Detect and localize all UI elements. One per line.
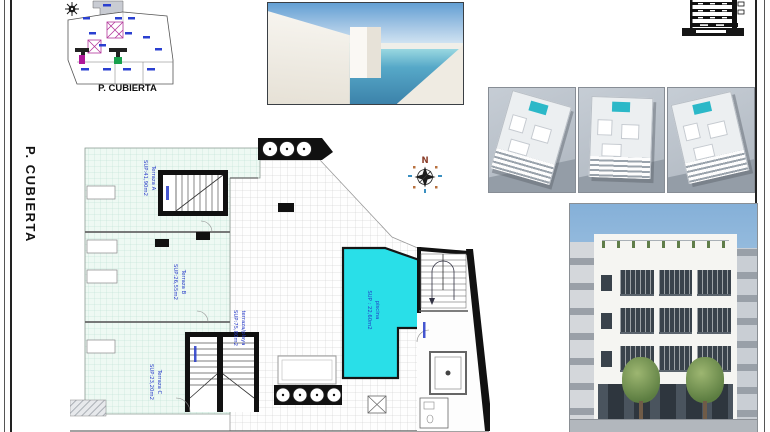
window — [620, 308, 654, 334]
pool-render-image — [267, 2, 464, 105]
frame-left-outer — [4, 0, 5, 432]
tree — [686, 357, 724, 419]
tree — [622, 357, 660, 419]
window — [620, 270, 654, 296]
roof-volume — [683, 123, 701, 142]
aerial-renders-strip — [488, 87, 755, 193]
roof-volume — [508, 115, 527, 135]
render-wall-right — [381, 43, 463, 49]
rooftop-pool — [611, 102, 629, 113]
roof-volume — [707, 121, 727, 139]
compass-north-label: N — [421, 156, 428, 166]
street-road — [570, 419, 757, 432]
vent-band-bottom — [274, 385, 342, 405]
piscina-area: SUP : 22,60m2 — [366, 290, 372, 329]
tree-canopy — [622, 357, 660, 403]
facade-render-image — [569, 203, 758, 432]
mini-plan-caption: P. CUBIERTA — [55, 83, 200, 94]
balcony-row — [620, 308, 731, 334]
window — [659, 308, 693, 334]
render-wall-cube — [350, 27, 381, 78]
rooftop-pool — [693, 101, 713, 115]
mini-green-core — [114, 57, 122, 64]
sidewalk-hatch — [70, 400, 106, 416]
building-section-drawing — [678, 0, 748, 40]
roof-volume — [597, 120, 613, 137]
aerial-render-2 — [578, 87, 666, 193]
terraza-c-name: Terraza C — [156, 369, 162, 395]
frame-left-inner — [10, 0, 12, 432]
window — [697, 308, 731, 334]
roof-volume — [621, 124, 639, 139]
neighbor-building-left — [570, 242, 595, 432]
terraza-playa-area: SUP:75,80m2 — [232, 310, 238, 346]
architectural-sheet: P. CUBIERTA — [0, 0, 770, 432]
terraza-b-name: Terraza B — [180, 269, 186, 295]
rooftop-plants — [602, 240, 729, 248]
north-compass: N — [408, 156, 442, 193]
frame-right-outer — [764, 0, 765, 432]
roof-plan-drawing: N Terraza A SUP:41,90m2 Terraza B SUP:26… — [70, 130, 490, 432]
tree-canopy — [686, 357, 724, 403]
mini-magenta-core — [79, 55, 85, 64]
roof-volume — [531, 125, 552, 144]
building-roof-3d — [671, 91, 750, 184]
window — [697, 270, 731, 296]
skylight — [278, 356, 336, 384]
building-roof-3d — [588, 96, 653, 179]
terraza-a-area: SUP:41,90m2 — [142, 160, 148, 196]
neighbor-building-right — [736, 248, 757, 432]
piscina-name: piscina — [374, 301, 380, 320]
shaft-x — [368, 396, 386, 413]
aerial-render-1 — [488, 87, 576, 193]
tree-trunk — [703, 401, 707, 419]
sheet-title-vertical: P. CUBIERTA — [23, 146, 38, 243]
tree-trunk — [639, 401, 643, 419]
terraza-c-area: SUP:23,20m2 — [148, 364, 154, 400]
terraza-playa-name: terraza/playa — [240, 310, 246, 345]
aerial-render-3 — [667, 87, 755, 193]
terraza-b-area: SUP:26,55m2 — [172, 264, 178, 300]
balcony-row — [620, 270, 731, 296]
roof-volume — [601, 144, 621, 158]
window — [659, 270, 693, 296]
building-facade-strip — [589, 157, 650, 180]
side-window — [601, 275, 612, 291]
right-core — [417, 247, 490, 431]
side-window — [601, 351, 612, 367]
terraza-a-name: Terraza A — [150, 165, 156, 191]
stair-core-a — [158, 170, 228, 216]
sun-icon — [65, 2, 79, 16]
rooftop-pool — [528, 101, 548, 116]
side-window — [601, 313, 612, 329]
vent-band-top — [258, 138, 333, 160]
